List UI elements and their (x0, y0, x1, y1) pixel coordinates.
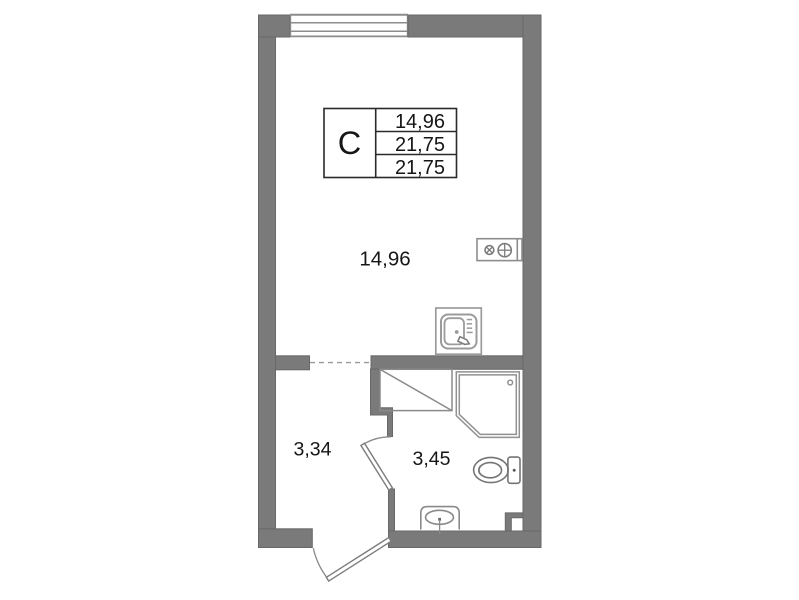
svg-text:21,75: 21,75 (395, 134, 445, 156)
svg-text:3,34: 3,34 (294, 439, 332, 461)
svg-text:14,96: 14,96 (395, 111, 445, 133)
svg-text:3,45: 3,45 (413, 448, 451, 470)
svg-text:21,75: 21,75 (395, 157, 445, 179)
svg-text:14,96: 14,96 (359, 248, 410, 271)
svg-text:С: С (338, 125, 361, 161)
